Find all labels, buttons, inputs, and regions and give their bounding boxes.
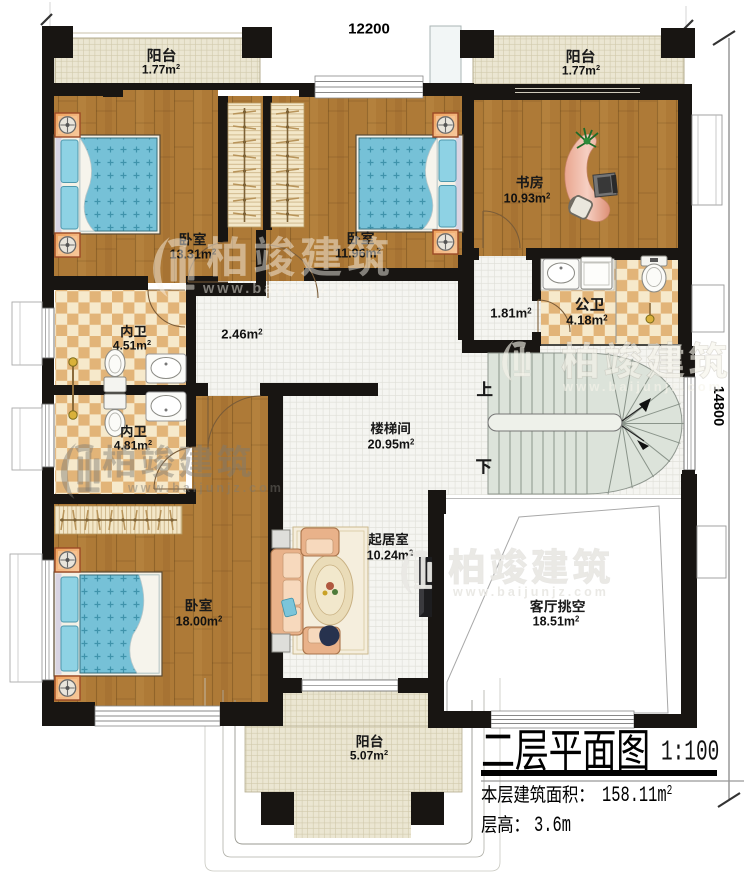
svg-text:2.46m2: 2.46m2 [221, 327, 263, 342]
svg-text:4.81m2: 4.81m2 [114, 438, 152, 452]
svg-text:3.6m: 3.6m [534, 812, 571, 837]
svg-text:4.18m2: 4.18m2 [566, 313, 608, 328]
svg-text:1:100: 1:100 [661, 736, 719, 769]
svg-text:10.93m2: 10.93m2 [504, 191, 551, 205]
svg-text:18.00m2: 18.00m2 [176, 614, 223, 628]
svg-text:4.51m2: 4.51m2 [113, 338, 151, 352]
svg-text:www.baijunjz.com: www.baijunjz.com [202, 281, 376, 297]
svg-text:5.07m2: 5.07m2 [350, 748, 388, 762]
svg-text:www.baijunjz.com: www.baijunjz.com [127, 481, 284, 495]
svg-text:1.81m2: 1.81m2 [490, 306, 532, 321]
svg-text:1.77m2: 1.77m2 [142, 62, 180, 76]
svg-text:www.baijunjz.com: www.baijunjz.com [452, 585, 609, 599]
svg-text:18.51m2: 18.51m2 [533, 614, 580, 628]
svg-text:158.11m2: 158.11m2 [602, 782, 672, 807]
svg-text:20.95m2: 20.95m2 [368, 437, 415, 451]
svg-text:1.77m2: 1.77m2 [562, 63, 600, 77]
svg-text:www.baijunjz.com: www.baijunjz.com [562, 379, 723, 394]
svg-text:12200: 12200 [348, 20, 390, 37]
